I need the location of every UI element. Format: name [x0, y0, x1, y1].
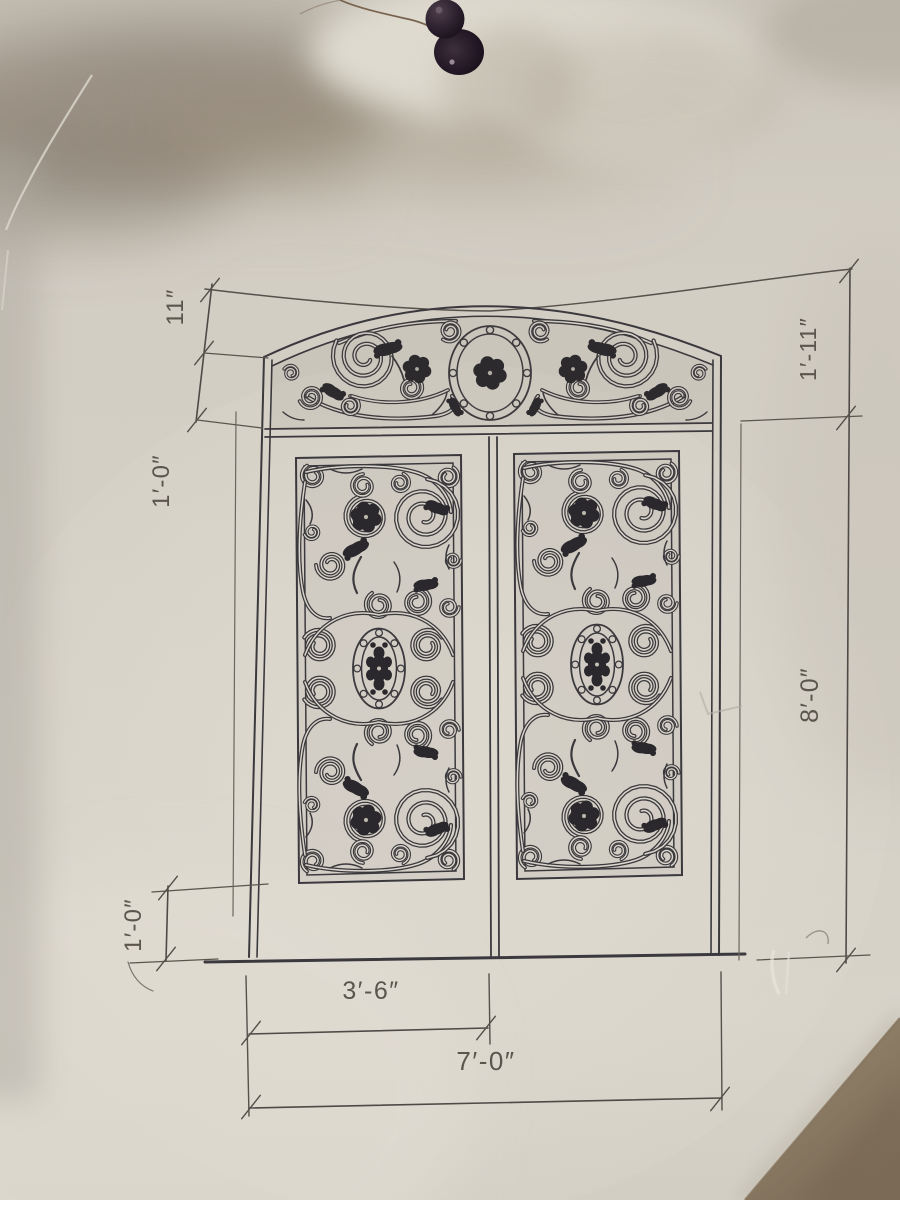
svg-text:8′-0″: 8′-0″: [796, 667, 824, 723]
svg-text:1′-0″: 1′-0″: [120, 898, 147, 952]
svg-text:1′-11″: 1′-11″: [795, 317, 821, 381]
svg-text:3′-6″: 3′-6″: [342, 977, 399, 1005]
svg-text:1′-0″: 1′-0″: [148, 454, 175, 508]
svg-text:11″: 11″: [162, 288, 189, 325]
svg-text:7′-0″: 7′-0″: [456, 1046, 515, 1076]
